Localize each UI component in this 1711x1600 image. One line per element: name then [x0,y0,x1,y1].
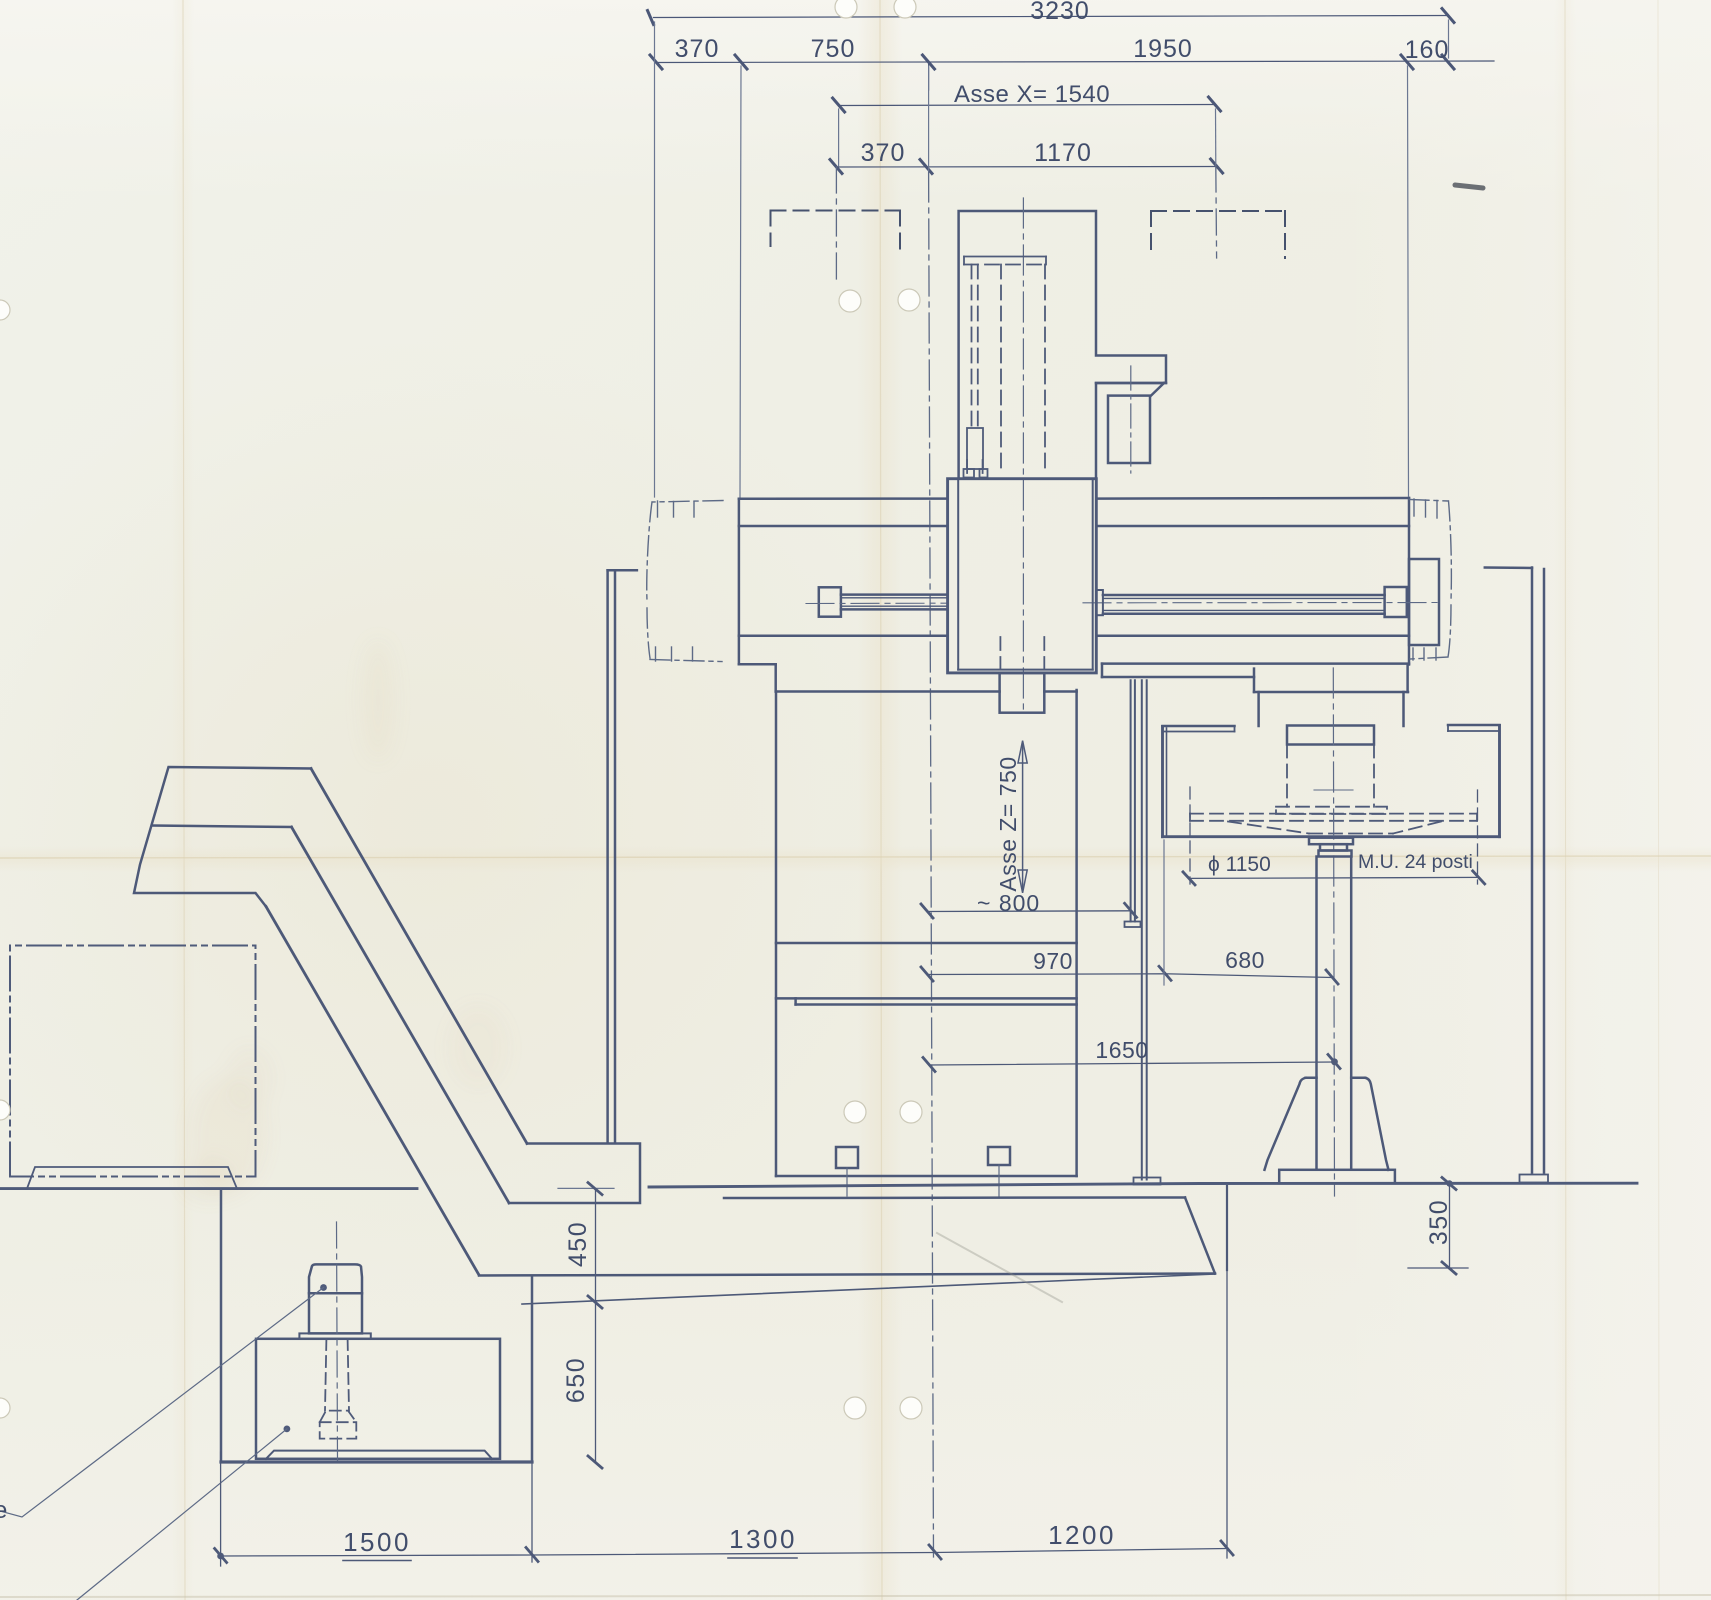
svg-text:M.U. 24 posti: M.U. 24 posti [1358,851,1473,873]
svg-text:350: 350 [1425,1199,1453,1245]
svg-text:ϕ 1150: ϕ 1150 [1208,853,1271,876]
svg-text:1200: 1200 [1048,1520,1116,1550]
svg-text:~ 800: ~ 800 [977,890,1040,916]
svg-text:370: 370 [861,139,906,167]
svg-text:3230: 3230 [1030,0,1090,25]
svg-text:970: 970 [1033,948,1073,974]
svg-text:Asse Z= 750: Asse Z= 750 [995,756,1021,891]
svg-text:750: 750 [811,35,856,63]
svg-text:680: 680 [1225,947,1265,973]
svg-text:1300: 1300 [729,1524,797,1554]
svg-text:1950: 1950 [1133,35,1193,63]
svg-text:e: e [0,1497,7,1524]
svg-text:1170: 1170 [1034,139,1092,167]
svg-text:1500: 1500 [343,1527,411,1557]
svg-text:Asse X= 1540: Asse X= 1540 [954,81,1110,108]
svg-text:650: 650 [562,1357,590,1403]
svg-text:450: 450 [564,1221,592,1267]
svg-text:370: 370 [675,35,720,63]
svg-text:1650: 1650 [1095,1037,1148,1063]
svg-text:160: 160 [1405,36,1450,64]
